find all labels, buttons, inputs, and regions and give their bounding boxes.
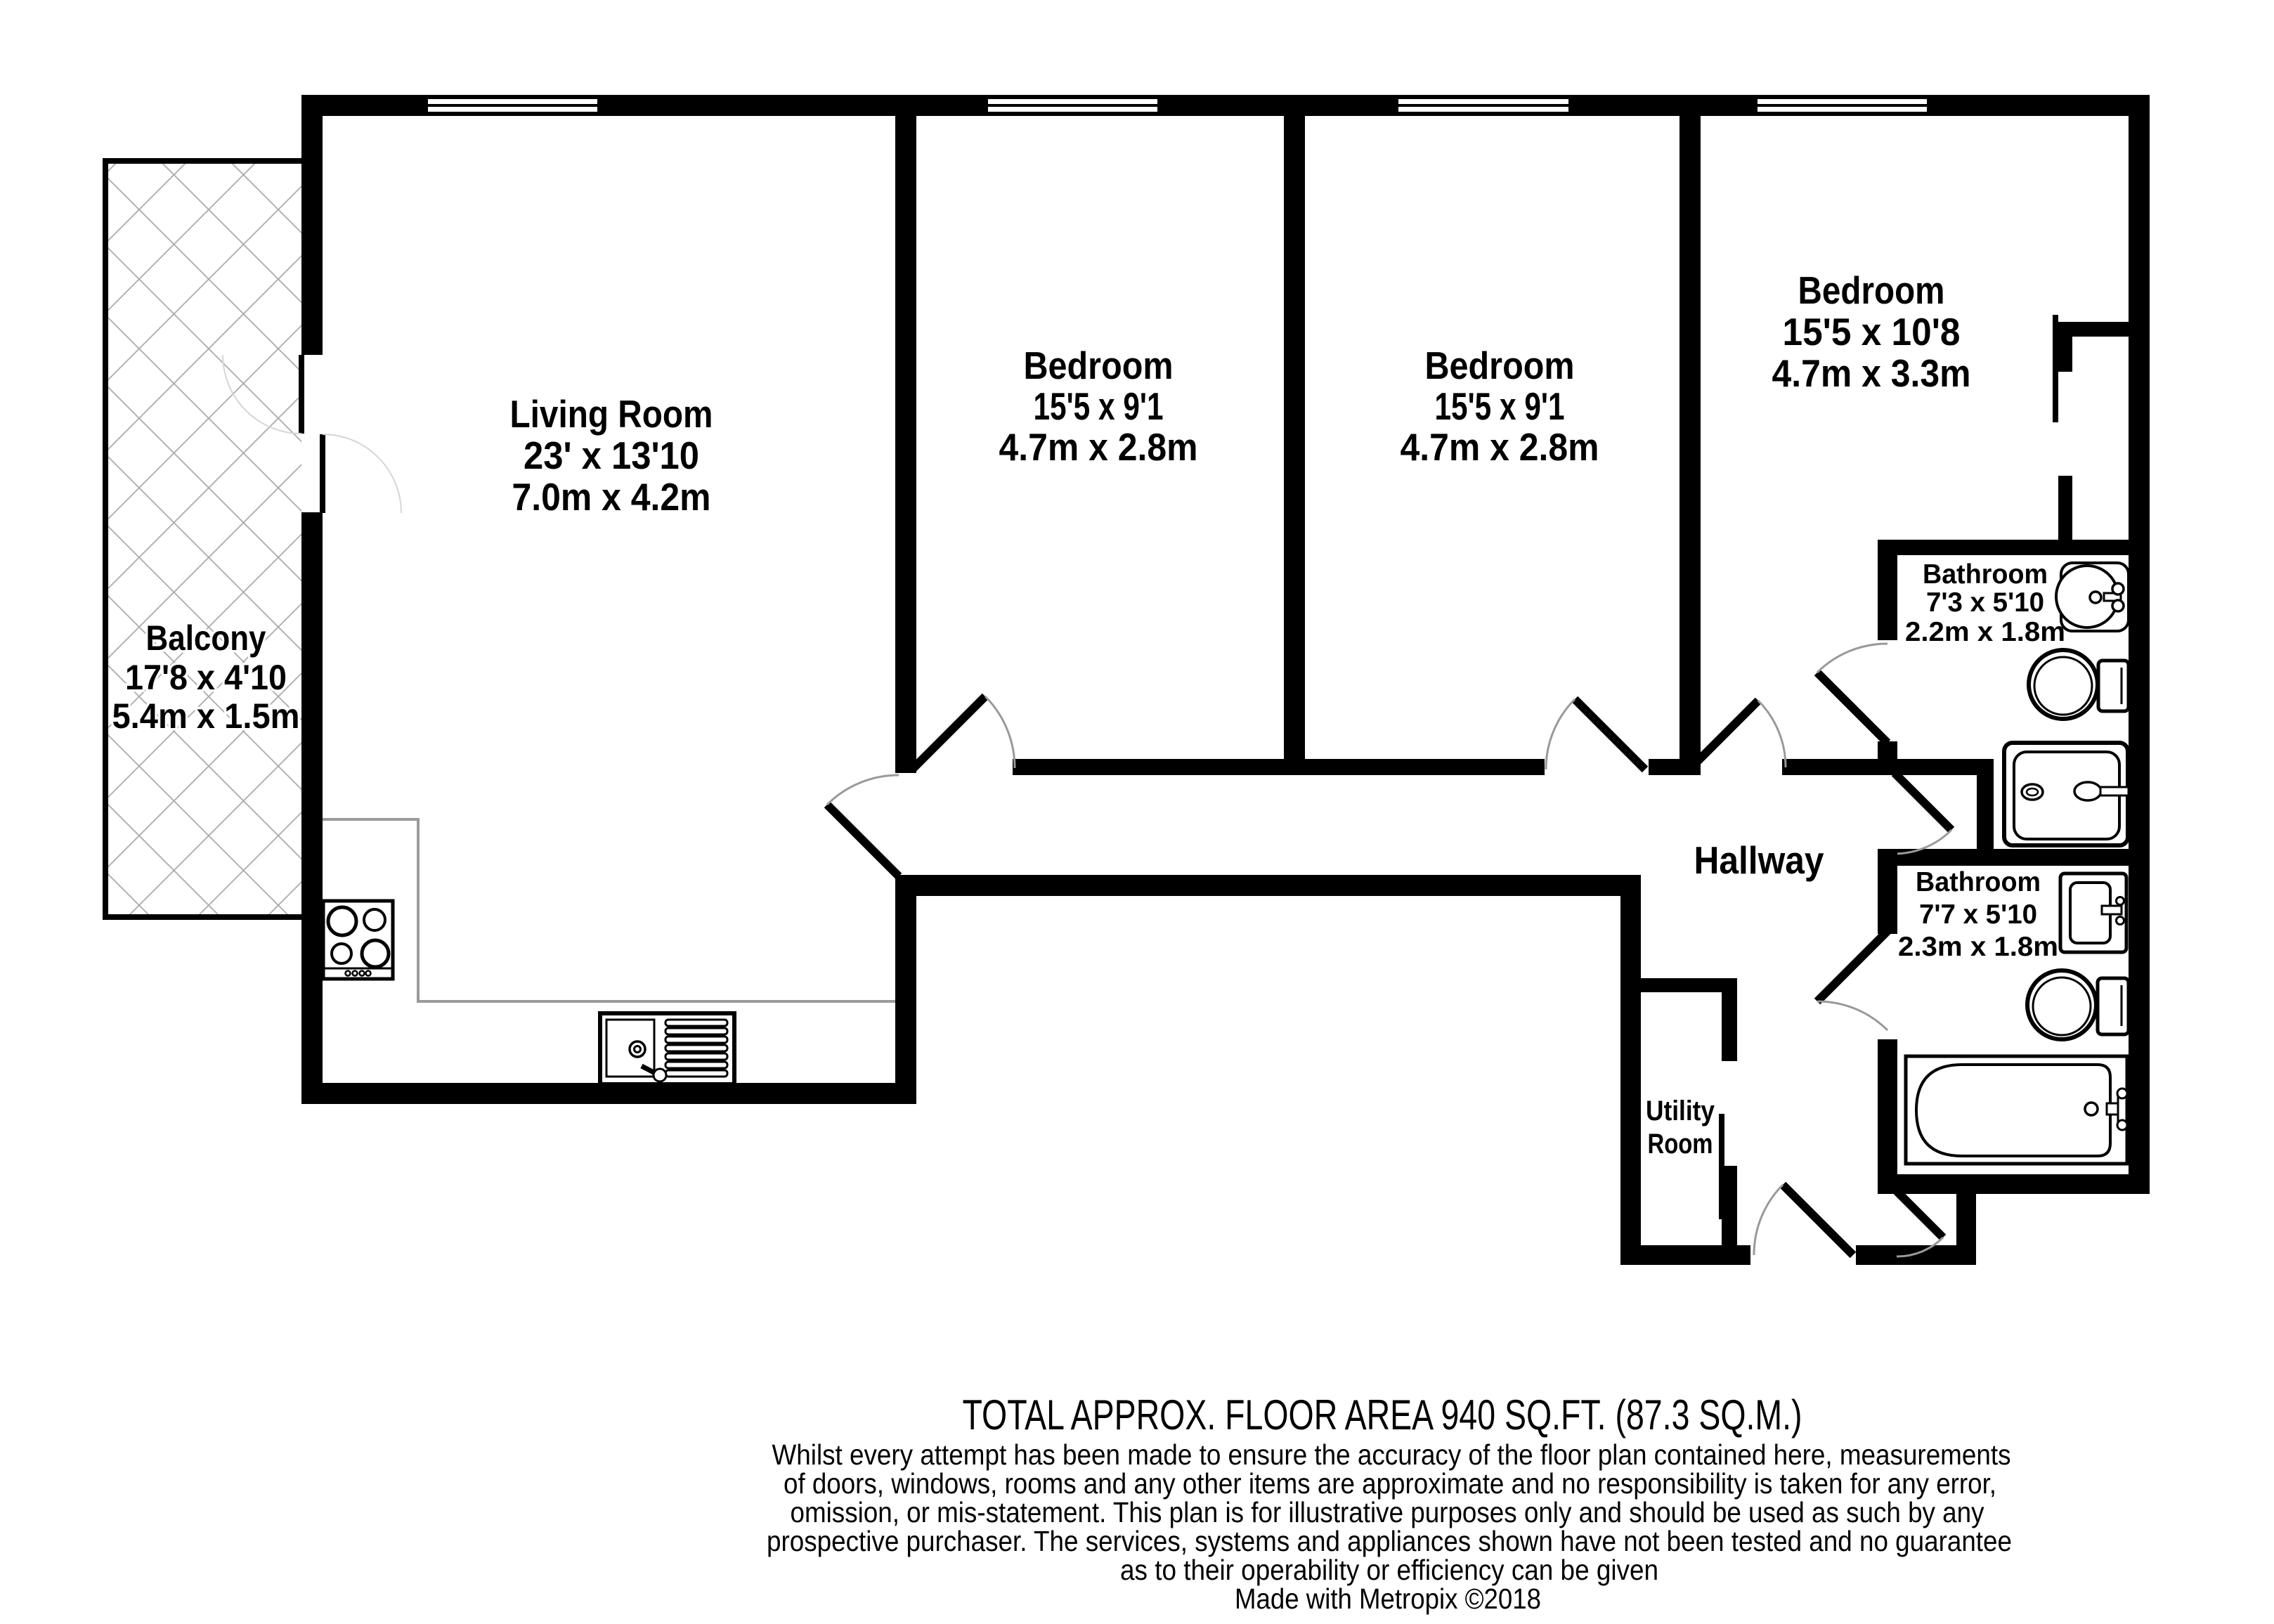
svg-text:Bedroom: Bedroom xyxy=(1798,268,1945,312)
svg-text:as to their operability or eff: as to their operability or efficiency ca… xyxy=(1120,1554,1658,1586)
svg-text:Bathroom: Bathroom xyxy=(1916,867,2041,897)
svg-text:Whilst every attempt has been: Whilst every attempt has been made to en… xyxy=(772,1438,2011,1471)
svg-text:Utility: Utility xyxy=(1646,1096,1715,1126)
svg-text:7.0m x 4.2m: 7.0m x 4.2m xyxy=(512,475,711,519)
svg-text:2.2m x 1.8m: 2.2m x 1.8m xyxy=(1905,617,2065,647)
svg-text:Hallway: Hallway xyxy=(1694,838,1824,882)
svg-text:23' x 13'10: 23' x 13'10 xyxy=(524,434,699,477)
svg-text:Bathroom: Bathroom xyxy=(1923,559,2048,590)
svg-text:4.7m x 3.3m: 4.7m x 3.3m xyxy=(1772,351,1971,395)
svg-text:Bedroom: Bedroom xyxy=(1024,344,1174,387)
svg-text:TOTAL APPROX. FLOOR AREA 940 S: TOTAL APPROX. FLOOR AREA 940 SQ.FT. (87.… xyxy=(963,1391,1802,1438)
svg-text:omission, or mis-statement. Th: omission, or mis-statement. This plan is… xyxy=(791,1496,1984,1528)
svg-text:15'5 x 10'8: 15'5 x 10'8 xyxy=(1783,310,1961,353)
svg-text:prospective purchaser. The ser: prospective purchaser. The services, sys… xyxy=(767,1525,2012,1557)
svg-text:7'7 x 5'10: 7'7 x 5'10 xyxy=(1919,899,2037,930)
svg-text:15'5 x 9'1: 15'5 x 9'1 xyxy=(1435,384,1565,428)
svg-text:4.7m x 2.8m: 4.7m x 2.8m xyxy=(999,425,1198,469)
svg-text:Made with Metropix ©2018: Made with Metropix ©2018 xyxy=(1235,1583,1541,1615)
svg-text:15'5 x 9'1: 15'5 x 9'1 xyxy=(1034,384,1164,428)
svg-text:Room: Room xyxy=(1648,1129,1713,1159)
svg-text:of doors, windows, rooms and a: of doors, windows, rooms and any other i… xyxy=(784,1467,1996,1500)
svg-text:Balcony: Balcony xyxy=(146,618,266,658)
svg-text:Living Room: Living Room xyxy=(510,392,713,436)
svg-text:7'3 x 5'10: 7'3 x 5'10 xyxy=(1926,587,2044,618)
svg-text:17'8 x 4'10: 17'8 x 4'10 xyxy=(125,658,287,697)
svg-text:2.3m x 1.8m: 2.3m x 1.8m xyxy=(1898,932,2058,962)
svg-text:4.7m x 2.8m: 4.7m x 2.8m xyxy=(1401,425,1599,469)
svg-text:Bedroom: Bedroom xyxy=(1425,344,1575,387)
svg-text:5.4m x 1.5m: 5.4m x 1.5m xyxy=(112,696,300,736)
